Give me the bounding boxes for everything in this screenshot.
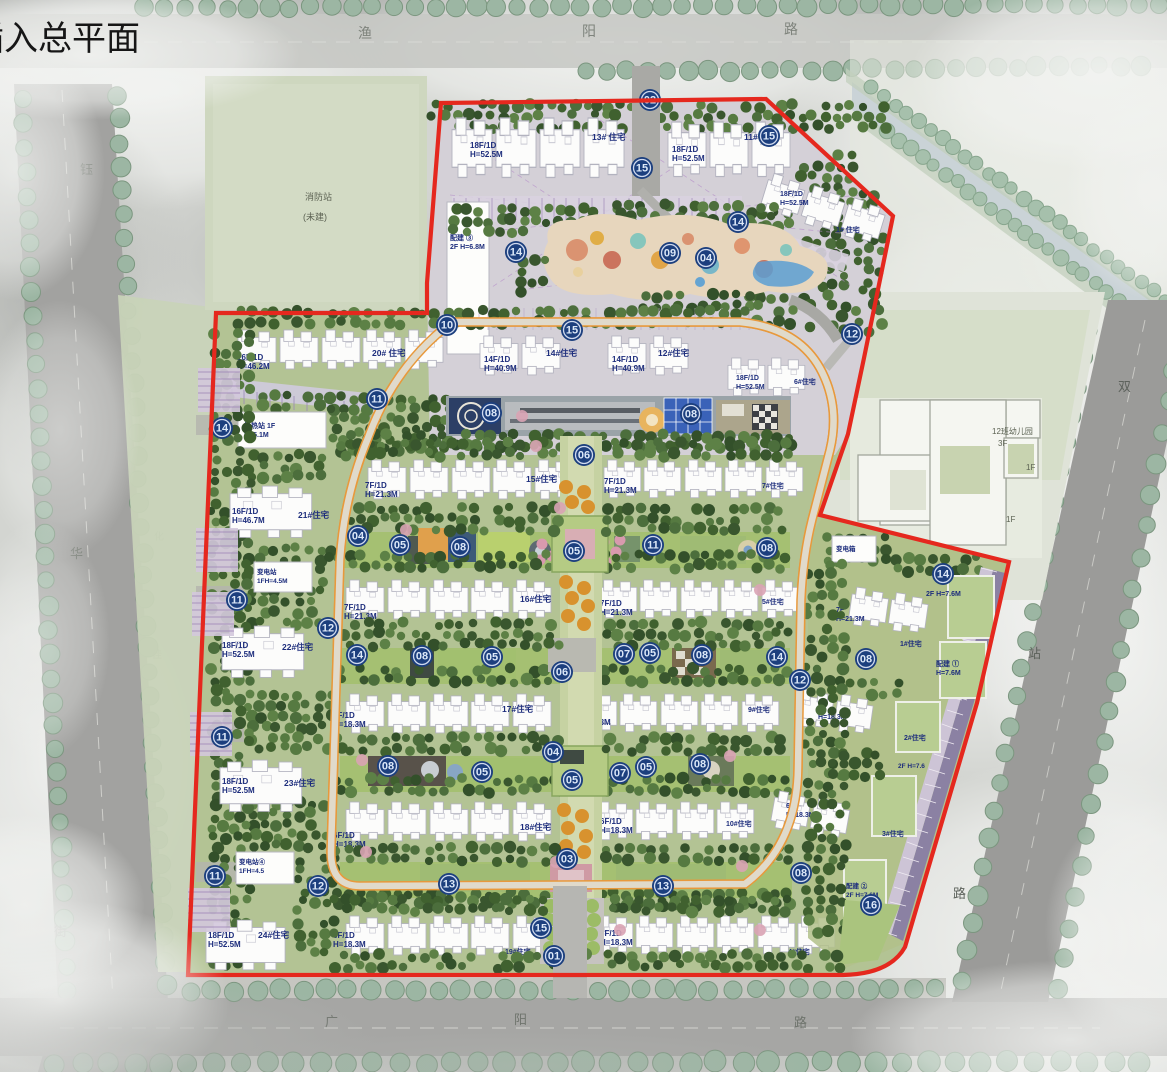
svg-text:04: 04 [547, 747, 560, 759]
svg-text:04: 04 [700, 253, 713, 265]
svg-text:14: 14 [510, 247, 523, 259]
svg-text:11: 11 [209, 871, 221, 883]
svg-text:H=52.5M: H=52.5M [222, 650, 255, 659]
svg-text:H=18.3M: H=18.3M [600, 938, 633, 947]
svg-text:H=52.5M: H=52.5M [222, 786, 255, 795]
svg-text:07: 07 [614, 768, 626, 780]
svg-text:09: 09 [664, 248, 676, 260]
svg-text:H=18.3M: H=18.3M [333, 940, 366, 949]
svg-text:08: 08 [795, 868, 807, 880]
svg-text:13: 13 [443, 879, 455, 891]
svg-text:06: 06 [578, 450, 590, 462]
svg-text:5#住宅: 5#住宅 [762, 597, 784, 606]
svg-text:15#住宅: 15#住宅 [526, 474, 558, 484]
svg-text:15: 15 [636, 163, 648, 175]
svg-text:14F/1D: 14F/1D [612, 355, 638, 364]
svg-text:18F/1D: 18F/1D [208, 931, 234, 940]
svg-text:6F/1D: 6F/1D [333, 831, 355, 840]
svg-text:12班幼儿园: 12班幼儿园 [992, 426, 1033, 436]
svg-text:11: 11 [231, 595, 243, 607]
svg-text:15: 15 [566, 325, 578, 337]
svg-text:H=21.3M: H=21.3M [604, 486, 637, 495]
svg-text:1# 住宅: 1# 住宅 [836, 225, 860, 234]
svg-text:18#住宅: 18#住宅 [520, 822, 552, 832]
svg-text:07: 07 [618, 649, 630, 661]
svg-text:17#住宅: 17#住宅 [502, 704, 534, 714]
svg-text:22#住宅: 22#住宅 [282, 642, 314, 652]
svg-text:7F/1D: 7F/1D [365, 481, 387, 490]
svg-text:H=52.5M: H=52.5M [208, 940, 241, 949]
svg-text:(未建): (未建) [303, 211, 327, 222]
svg-text:05: 05 [640, 762, 652, 774]
svg-text:08: 08 [382, 761, 394, 773]
svg-text:H=21.3M: H=21.3M [365, 490, 398, 499]
svg-text:H=46.7M: H=46.7M [232, 516, 265, 525]
svg-text:18F/1D: 18F/1D [470, 141, 496, 150]
svg-text:1F: 1F [1006, 515, 1015, 524]
svg-text:变电站: 变电站 [257, 567, 277, 576]
svg-text:阳: 阳 [514, 1012, 527, 1027]
svg-text:配建 ②: 配建 ② [846, 881, 868, 890]
svg-text:20# 住宅: 20# 住宅 [372, 348, 406, 358]
svg-text:插入总平面: 插入总平面 [0, 20, 140, 58]
svg-text:6F/1D: 6F/1D [600, 817, 622, 826]
svg-text:14: 14 [771, 652, 784, 664]
svg-text:H=40.9M: H=40.9M [612, 364, 645, 373]
svg-text:24#住宅: 24#住宅 [258, 930, 290, 940]
svg-text:2F H=7.6M: 2F H=7.6M [926, 591, 961, 598]
svg-text:10#住宅: 10#住宅 [726, 819, 752, 828]
svg-text:08: 08 [685, 409, 697, 421]
svg-text:16: 16 [865, 900, 877, 912]
svg-text:01: 01 [548, 951, 560, 963]
svg-text:12: 12 [846, 329, 858, 341]
svg-text:9#住宅: 9#住宅 [748, 705, 770, 714]
svg-text:12: 12 [312, 881, 324, 893]
svg-text:3F: 3F [998, 439, 1007, 448]
svg-text:阳: 阳 [582, 23, 596, 39]
svg-text:站: 站 [1028, 646, 1041, 661]
svg-text:05: 05 [486, 652, 498, 664]
svg-text:05: 05 [476, 767, 488, 779]
svg-text:3#住宅: 3#住宅 [882, 829, 904, 838]
svg-text:7F/1D: 7F/1D [344, 603, 366, 612]
svg-text:14: 14 [937, 569, 950, 581]
svg-text:15: 15 [763, 131, 775, 143]
svg-text:1#住宅: 1#住宅 [900, 639, 922, 648]
svg-text:7#住宅: 7#住宅 [762, 481, 784, 490]
svg-text:14: 14 [216, 423, 229, 435]
svg-text:H=40.9M: H=40.9M [484, 364, 517, 373]
svg-text:08: 08 [761, 543, 773, 555]
svg-text:11: 11 [371, 394, 383, 406]
svg-text:05: 05 [644, 648, 656, 660]
svg-text:08: 08 [696, 650, 708, 662]
svg-text:路: 路 [794, 1015, 807, 1030]
svg-text:05: 05 [394, 540, 406, 552]
svg-text:6#住宅: 6#住宅 [794, 377, 816, 386]
svg-text:2F H=7.6: 2F H=7.6 [898, 763, 925, 770]
svg-text:12: 12 [322, 623, 334, 635]
svg-text:14F/1D: 14F/1D [484, 355, 510, 364]
svg-text:08: 08 [485, 408, 497, 420]
svg-text:10: 10 [441, 320, 453, 332]
svg-text:18F/1D: 18F/1D [736, 375, 759, 382]
svg-text:13# 住宅: 13# 住宅 [592, 132, 626, 142]
svg-text:11: 11 [647, 540, 659, 552]
svg-text:18F/1D: 18F/1D [780, 191, 803, 198]
svg-text:06: 06 [556, 667, 568, 679]
svg-text:18F/1D: 18F/1D [222, 777, 248, 786]
svg-text:1FH=4.5: 1FH=4.5 [239, 868, 264, 875]
svg-text:11: 11 [216, 732, 228, 744]
svg-text:08: 08 [454, 542, 466, 554]
svg-text:H=21.3M: H=21.3M [600, 608, 633, 617]
svg-text:14: 14 [351, 650, 364, 662]
svg-text:05: 05 [566, 775, 578, 787]
svg-text:05: 05 [568, 546, 580, 558]
svg-text:12#住宅: 12#住宅 [658, 348, 690, 358]
svg-text:18F/1D: 18F/1D [222, 641, 248, 650]
svg-text:16F/1D: 16F/1D [232, 507, 258, 516]
svg-text:变电箱: 变电箱 [836, 544, 856, 553]
svg-text:H=52.5M: H=52.5M [736, 384, 765, 391]
svg-text:14#住宅: 14#住宅 [546, 348, 578, 358]
svg-text:21#住宅: 21#住宅 [298, 510, 330, 520]
svg-text:18F/1D: 18F/1D [672, 145, 698, 154]
svg-text:7F/1D: 7F/1D [600, 599, 622, 608]
svg-text:7F/1D: 7F/1D [604, 477, 626, 486]
svg-text:03: 03 [561, 854, 573, 866]
svg-text:H=7.6M: H=7.6M [936, 670, 961, 677]
svg-text:H=18.3M: H=18.3M [600, 826, 633, 835]
svg-text:2F H=6.8M: 2F H=6.8M [450, 244, 485, 251]
svg-text:2#住宅: 2#住宅 [904, 733, 926, 742]
svg-text:08: 08 [416, 651, 428, 663]
svg-text:1F: 1F [1026, 463, 1035, 472]
svg-text:路: 路 [953, 886, 966, 901]
svg-text:H=52.5M: H=52.5M [672, 154, 705, 163]
svg-text:配建 ①: 配建 ① [936, 659, 959, 668]
svg-text:变电站④: 变电站④ [239, 857, 266, 866]
svg-text:H=52.5M: H=52.5M [470, 150, 503, 159]
svg-text:双: 双 [1118, 379, 1131, 394]
svg-text:08: 08 [694, 759, 706, 771]
svg-text:H=52.5M: H=52.5M [780, 200, 809, 207]
svg-text:04: 04 [352, 531, 365, 543]
svg-text:消防站: 消防站 [305, 191, 332, 202]
svg-text:08: 08 [860, 654, 872, 666]
svg-text:1FH=4.5M: 1FH=4.5M [257, 578, 288, 585]
svg-text:13: 13 [657, 881, 669, 893]
svg-text:15: 15 [535, 923, 547, 935]
svg-text:23#住宅: 23#住宅 [284, 778, 316, 788]
svg-text:16#住宅: 16#住宅 [520, 594, 552, 604]
svg-text:路: 路 [784, 21, 798, 37]
svg-text:12: 12 [794, 675, 806, 687]
svg-text:14: 14 [732, 217, 745, 229]
svg-text:渔: 渔 [358, 25, 372, 41]
